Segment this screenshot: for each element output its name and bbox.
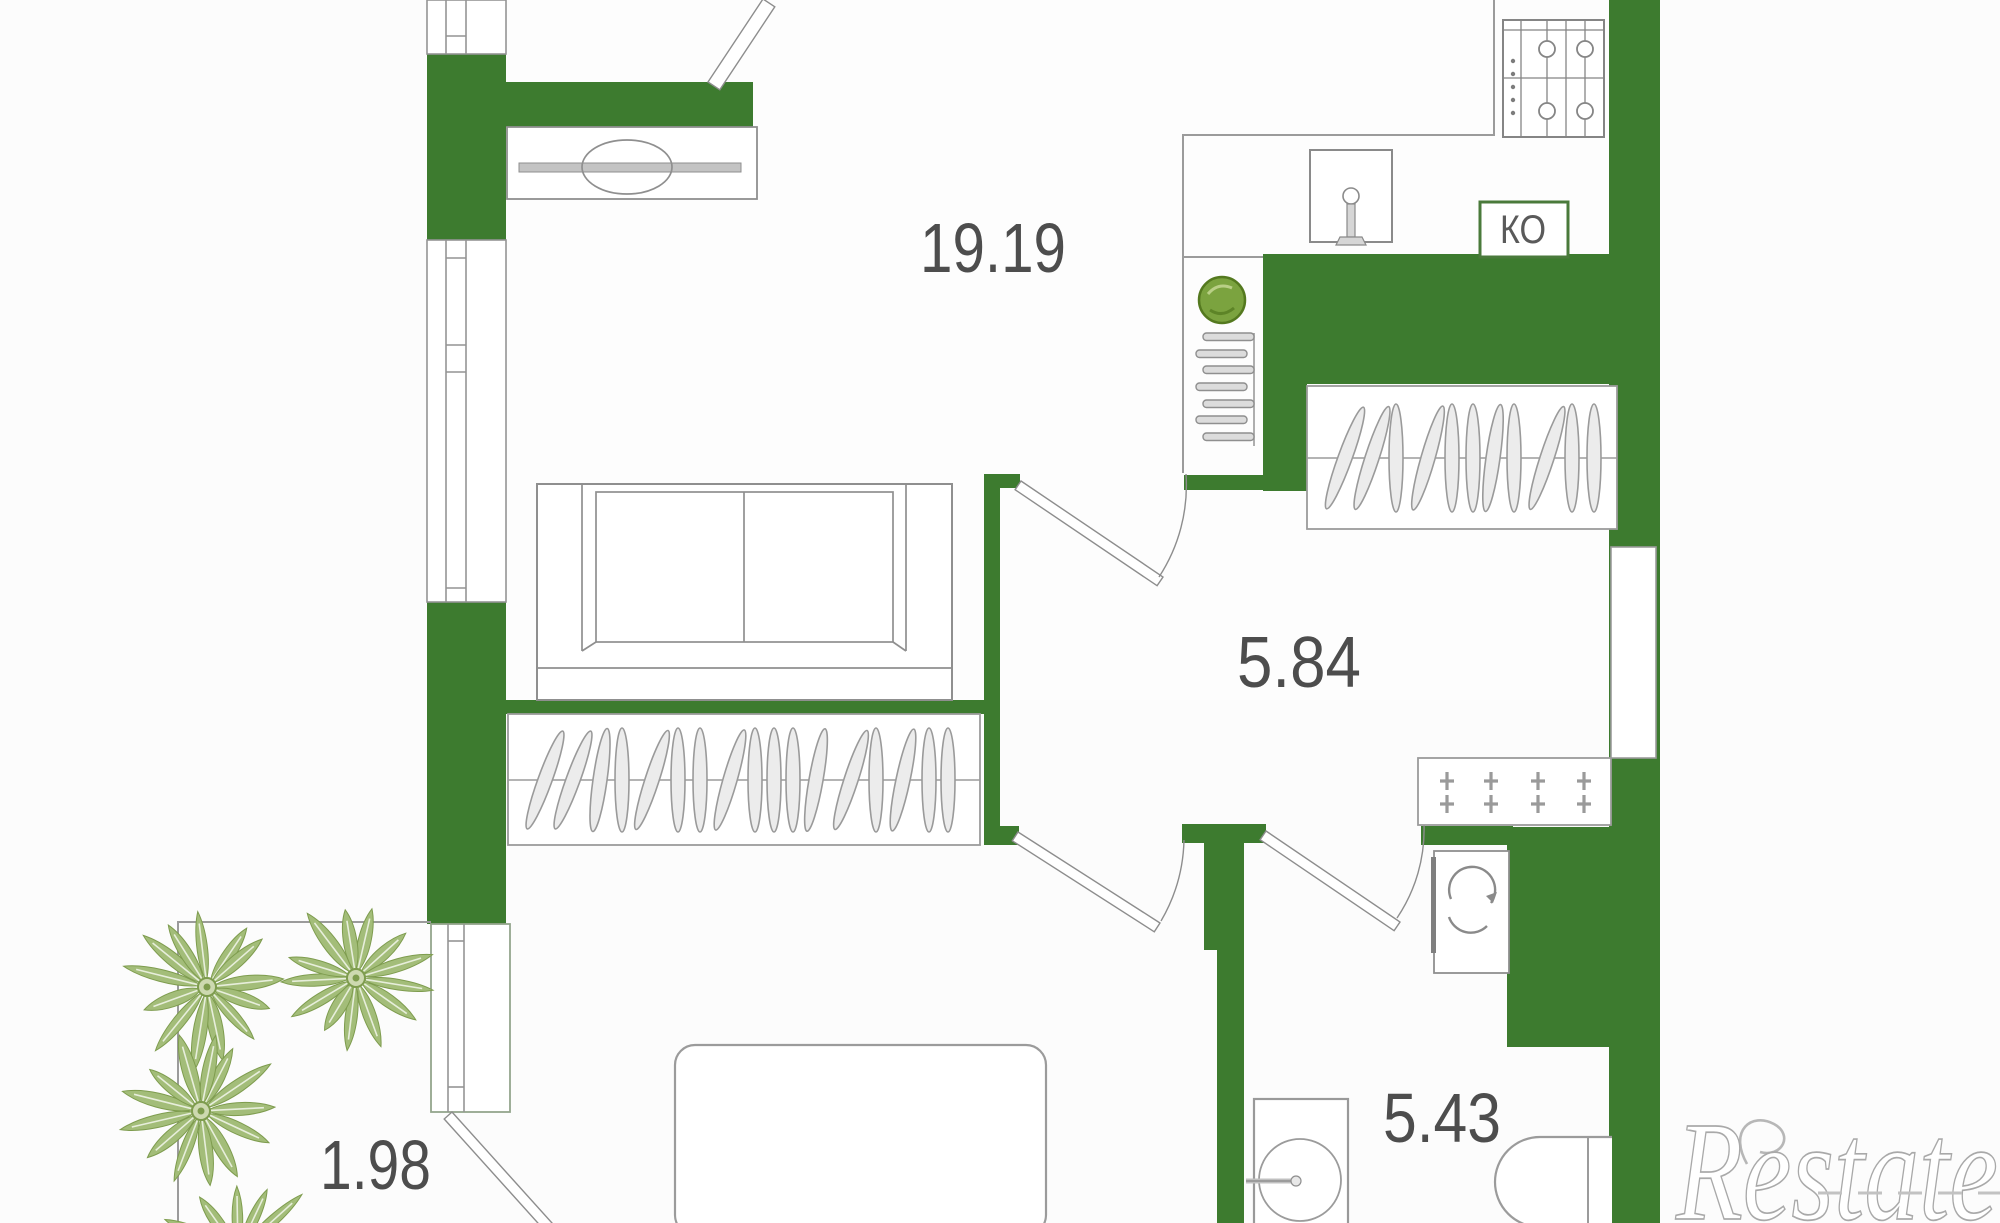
svg-text:5.43: 5.43 [1383, 1079, 1501, 1157]
svg-text:Restate: Restate [1675, 1092, 1998, 1223]
svg-text:КО: КО [1500, 208, 1546, 252]
svg-text:5.84: 5.84 [1237, 623, 1361, 703]
svg-text:19.19: 19.19 [920, 209, 1066, 287]
svg-text:1.98: 1.98 [320, 1126, 431, 1204]
